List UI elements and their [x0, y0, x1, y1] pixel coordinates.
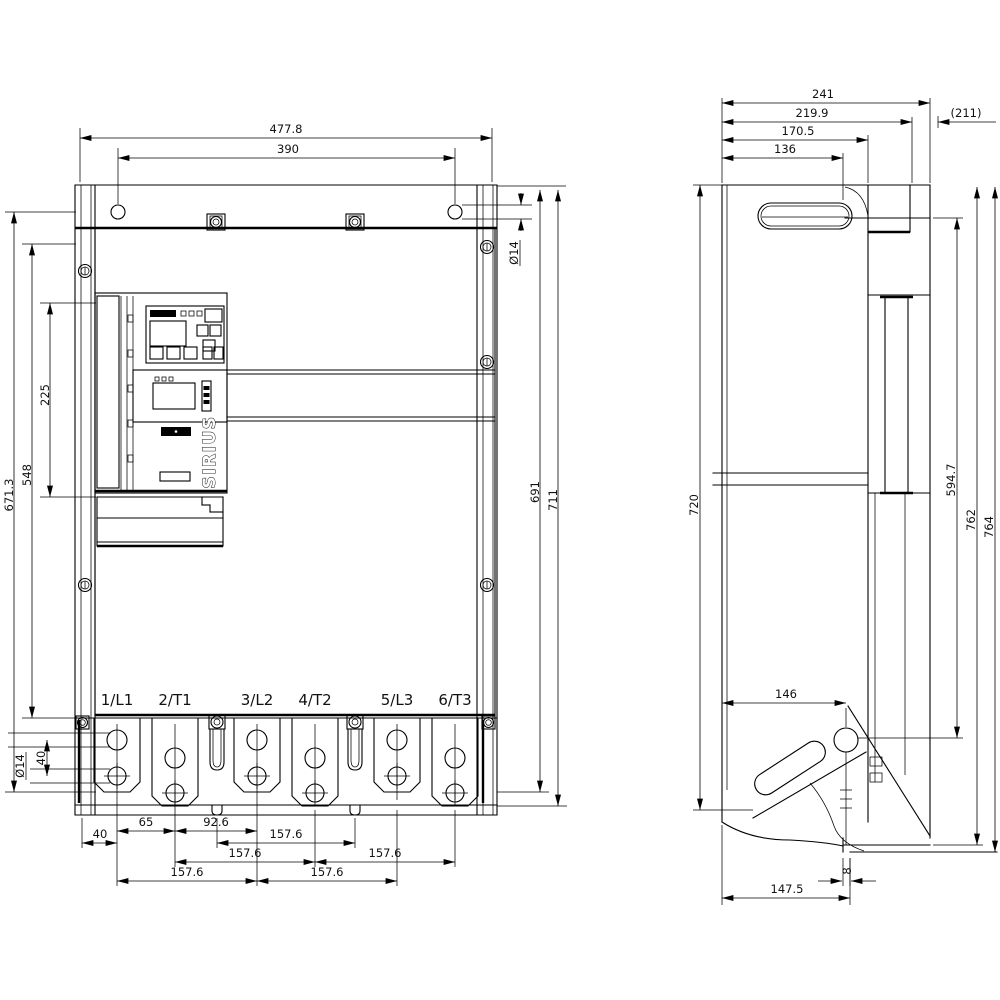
- terminal-label-1: 1/L1: [101, 691, 134, 709]
- dim-side-depth-136: 136: [774, 142, 796, 156]
- dim-front-overall-width: 477.8: [270, 122, 303, 136]
- deflector-edge: [848, 706, 930, 836]
- front-frame: [75, 185, 497, 815]
- bracket-curve: [810, 783, 864, 851]
- dia-label-top: Ø14: [507, 241, 521, 265]
- front-view: SIRIUS 1/L1 2/T1 3/L2 4/T2 5/L3 6/T3: [2, 122, 567, 886]
- dimension-drawing: SIRIUS 1/L1 2/T1 3/L2 4/T2 5/L3 6/T3: [0, 0, 1000, 1000]
- side-bracket: [722, 728, 866, 851]
- fin-inner-box: [885, 297, 908, 493]
- front-body-panel: [95, 228, 495, 715]
- dim-front-offset-40v: 40: [34, 751, 48, 766]
- dim-front-height-225: 225: [38, 384, 52, 406]
- dia-label-bottom: Ø14: [13, 754, 27, 778]
- terminal-plate-5: [374, 718, 420, 800]
- dim-front-pitch-157-c: 157.6: [369, 846, 402, 860]
- dim-side-depth-211: (211): [951, 106, 982, 120]
- dim-front-offset-40h: 40: [93, 827, 108, 841]
- flange-clip-left: [207, 214, 225, 230]
- brand-label: SIRIUS: [200, 415, 220, 488]
- terminal-plate-2: [152, 718, 198, 806]
- bracket-hole: [834, 728, 858, 752]
- top-slot: [758, 203, 852, 229]
- terminal-label-4: 4/T2: [298, 691, 331, 709]
- dim-side-height-720: 720: [687, 494, 701, 516]
- terminal-label-3: 3/L2: [241, 691, 274, 709]
- terminal-plate-4: [292, 718, 338, 806]
- dim-side-height-594: 594.7: [944, 464, 958, 497]
- flange-hole-left: [111, 205, 125, 219]
- hmi-screen: [150, 321, 186, 346]
- bracket-bottom: [722, 822, 843, 846]
- display-screen: [153, 383, 195, 409]
- dim-side-depth-170: 170.5: [782, 124, 815, 138]
- fixing-slot-right: [347, 715, 363, 815]
- terminal-plate-1: [94, 718, 140, 800]
- dim-side-foot-8: 8: [840, 867, 854, 874]
- panel-bands: [227, 370, 495, 421]
- dim-side-height-762: 762: [964, 509, 978, 531]
- dim-front-hole-spacing: 390: [277, 142, 299, 156]
- terminal-strip: [97, 296, 119, 488]
- dim-side-height-764: 764: [982, 516, 996, 538]
- rating-plate: [160, 472, 190, 481]
- dim-front-height-671: 671.3: [2, 479, 16, 512]
- terminal-label-6: 6/T3: [438, 691, 471, 709]
- display-module: [133, 370, 227, 422]
- terminal-plate-3: [234, 718, 280, 800]
- side-view: 241 219.9 (211) 170.5 136 720 594.7 762: [687, 87, 997, 905]
- foot: [840, 752, 997, 852]
- step-block: [97, 497, 223, 546]
- hmi-panel: [146, 306, 224, 363]
- terminal-label-2: 2/T1: [158, 691, 191, 709]
- dim-side-width-146: 146: [775, 687, 797, 701]
- dim-front-pitch-157-a: 157.6: [270, 827, 303, 841]
- dim-front-pitch-157-e: 157.6: [311, 865, 344, 879]
- dim-front-pitch-65: 65: [139, 815, 154, 829]
- hmi-status-bar: [150, 310, 176, 317]
- dim-front-pitch-92: 92.6: [203, 815, 229, 829]
- side-dimensions: 241 219.9 (211) 170.5 136 720 594.7 762: [687, 87, 996, 905]
- dim-side-depth-241: 241: [812, 87, 834, 101]
- terminal-labels: 1/L1 2/T1 3/L2 4/T2 5/L3 6/T3: [101, 691, 472, 709]
- dim-front-height-711: 711: [546, 489, 560, 511]
- terminal-plate-6: [432, 718, 478, 806]
- dim-side-width-147: 147.5: [771, 882, 804, 896]
- terminal-label-5: 5/L3: [381, 691, 414, 709]
- dim-front-pitch-157-d: 157.6: [171, 865, 204, 879]
- terminal-block: [76, 715, 495, 815]
- fixing-slot-left: [209, 715, 225, 815]
- dim-front-height-548: 548: [20, 464, 34, 486]
- side-body: [713, 185, 997, 852]
- flange-clip-right: [346, 214, 364, 230]
- dim-front-height-691: 691: [528, 481, 542, 503]
- dim-side-depth-219: 219.9: [796, 106, 829, 120]
- bracket-slot: [750, 737, 829, 799]
- dim-front-pitch-157-b: 157.6: [229, 846, 262, 860]
- drawing-page: SIRIUS 1/L1 2/T1 3/L2 4/T2 5/L3 6/T3: [0, 0, 1000, 1000]
- control-module: SIRIUS: [95, 293, 227, 546]
- flange-hole-right: [448, 205, 462, 219]
